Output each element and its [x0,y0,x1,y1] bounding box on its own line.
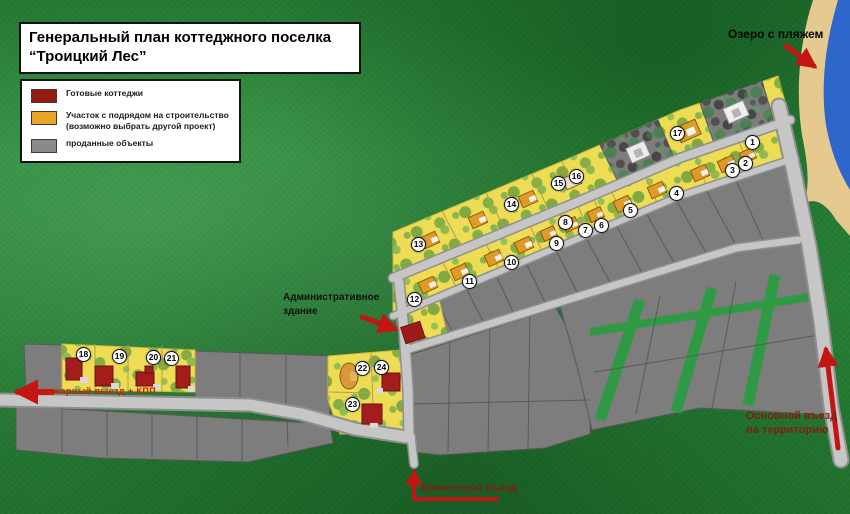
plot-marker-5: 5 [623,203,638,218]
plot-marker-1: 1 [745,135,760,150]
plot-marker-11: 11 [462,274,477,289]
plot-marker-19: 19 [112,349,127,364]
plot-marker-24: 24 [374,360,389,375]
plot-marker-12: 12 [407,292,422,307]
plot-marker-3: 3 [725,163,740,178]
plot-marker-9: 9 [549,236,564,251]
plot-marker-4: 4 [669,186,684,201]
plot-marker-8: 8 [558,215,573,230]
plot-marker-7: 7 [578,223,593,238]
plot-marker-13: 13 [411,237,426,252]
plot-markers: 123456789101112131415161718192021222324 [0,0,850,514]
plot-marker-21: 21 [164,351,179,366]
plot-marker-14: 14 [504,197,519,212]
plot-marker-20: 20 [146,350,161,365]
site-plan-map: Генеральный план коттеджного поселка “Тр… [0,0,850,514]
plot-marker-18: 18 [76,347,91,362]
plot-marker-16: 16 [569,169,584,184]
plot-marker-6: 6 [594,218,609,233]
plot-marker-17: 17 [670,126,685,141]
plot-marker-22: 22 [355,361,370,376]
plot-marker-23: 23 [345,397,360,412]
plot-marker-2: 2 [738,156,753,171]
plot-marker-10: 10 [504,255,519,270]
plot-marker-15: 15 [551,176,566,191]
